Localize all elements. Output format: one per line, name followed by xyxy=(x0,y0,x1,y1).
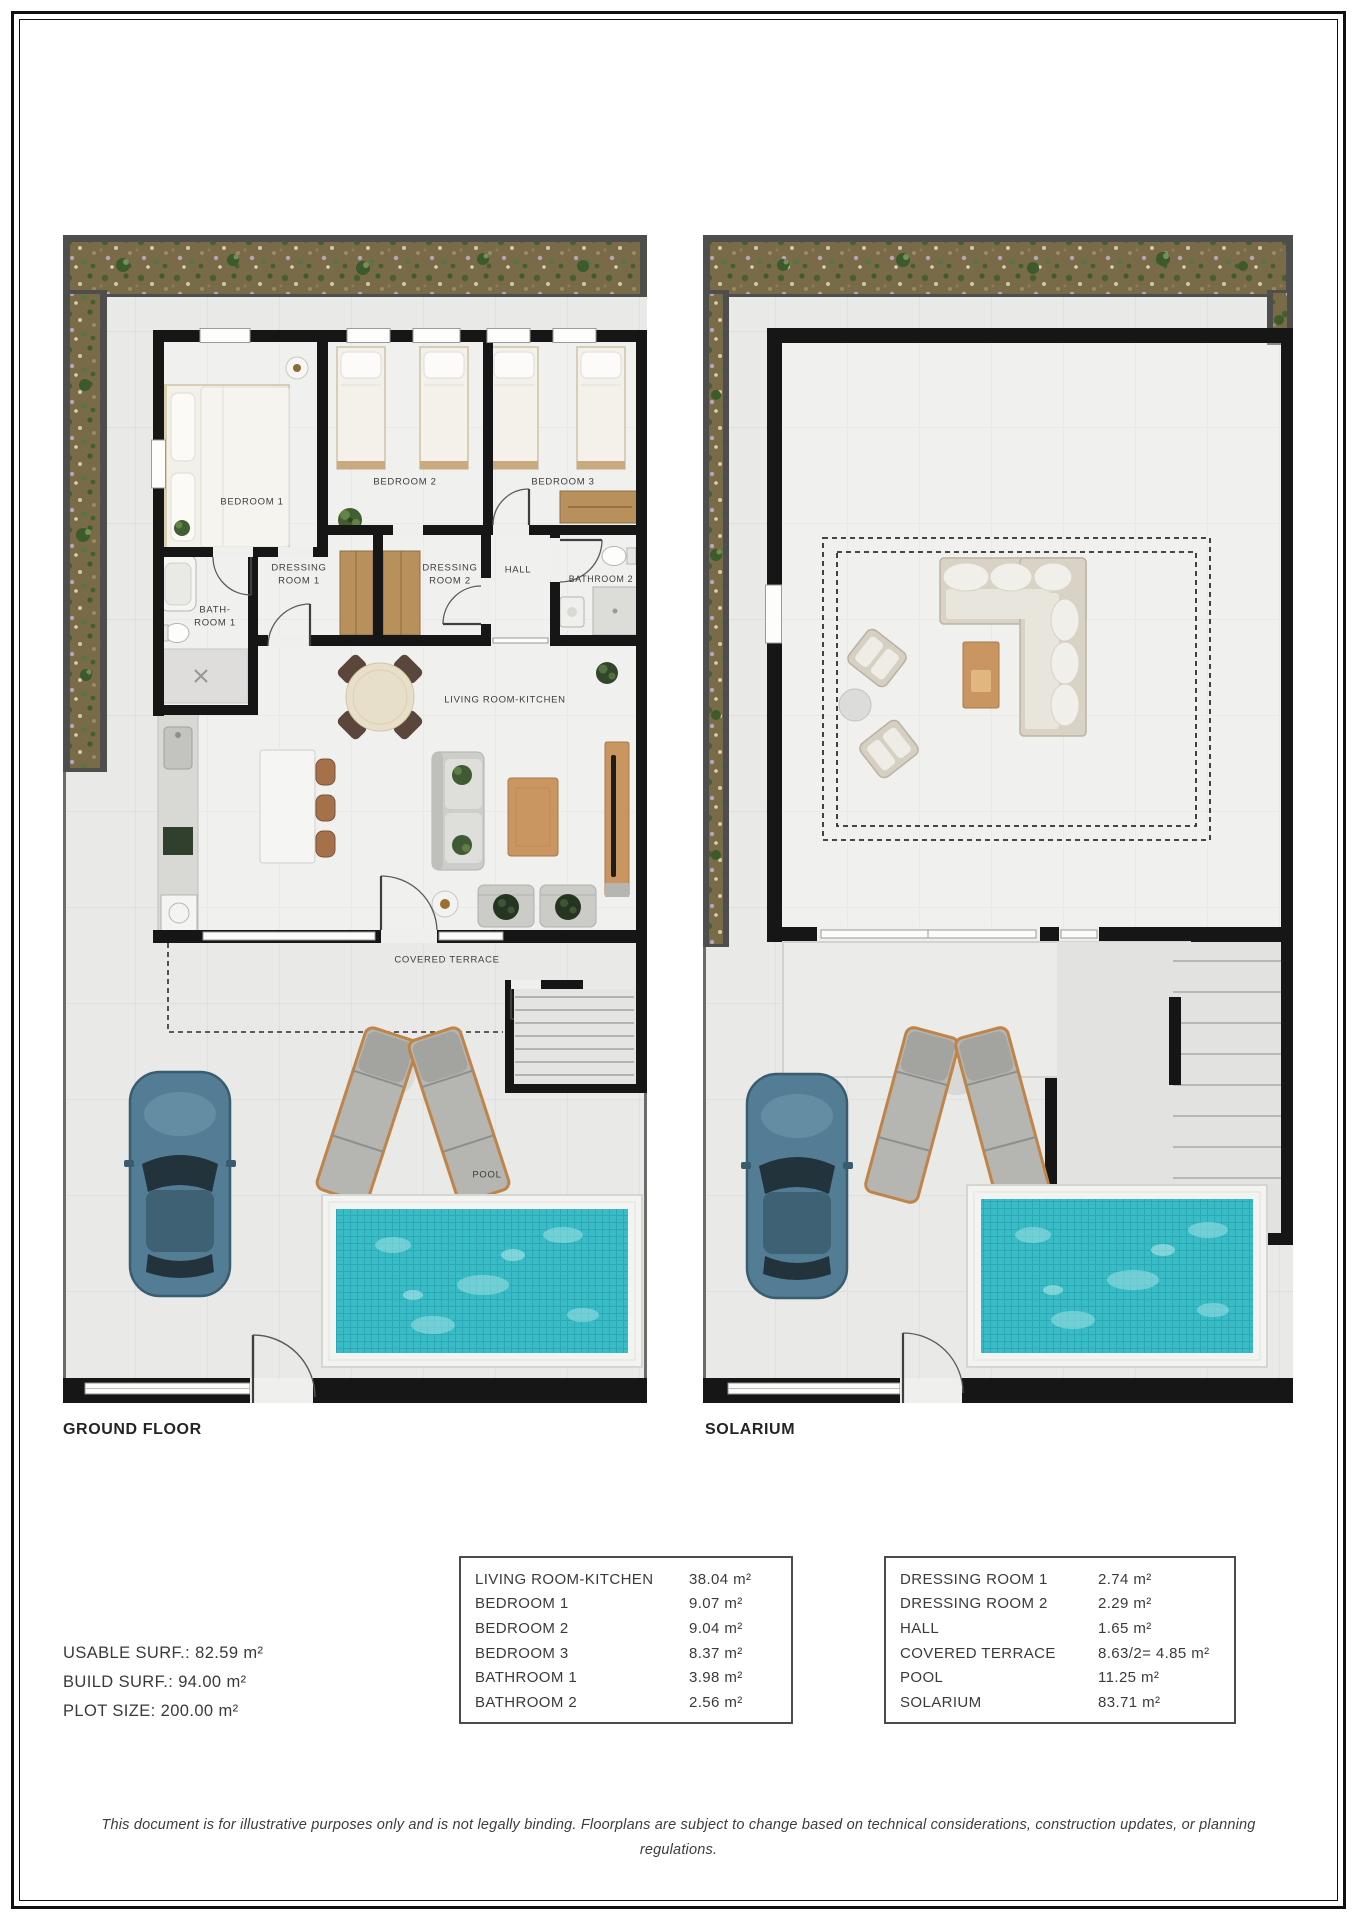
stat-usable-surface: USABLE SURF.: 82.59 m² xyxy=(63,1639,263,1668)
row-label: DRESSING ROOM 1 xyxy=(886,1571,1098,1588)
room-label-bedroom2: BEDROOM 2 xyxy=(373,477,436,490)
row-value: 83.71 m² xyxy=(1098,1694,1234,1711)
room-label-bedroom1: BEDROOM 1 xyxy=(220,497,283,510)
row-value: 2.74 m² xyxy=(1098,1571,1234,1588)
floorplan-page: BEDROOM 1 BEDROOM 2 BEDROOM 3 DRESSING R… xyxy=(0,0,1357,1920)
row-value: 2.56 m² xyxy=(689,1694,791,1711)
room-label-terrace: COVERED TERRACE xyxy=(394,955,499,968)
row-label: BATHROOM 2 xyxy=(461,1694,689,1711)
row-label: DRESSING ROOM 2 xyxy=(886,1595,1098,1612)
row-label: LIVING ROOM-KITCHEN xyxy=(461,1571,689,1588)
row-label: BEDROOM 2 xyxy=(461,1620,689,1637)
area-table-exterior: DRESSING ROOM 12.74 m² DRESSING ROOM 22.… xyxy=(884,1556,1236,1724)
plan-title-solarium: SOLARIUM xyxy=(705,1421,795,1439)
room-label-hall: HALL xyxy=(505,565,532,578)
table-row: BATHROOM 22.56 m² xyxy=(461,1690,791,1715)
row-label: HALL xyxy=(886,1620,1098,1637)
row-label: SOLARIUM xyxy=(886,1694,1098,1711)
room-label-pool: POOL xyxy=(472,1170,501,1183)
row-value: 8.37 m² xyxy=(689,1645,791,1662)
row-value: 3.98 m² xyxy=(689,1669,791,1686)
row-label: COVERED TERRACE xyxy=(886,1645,1098,1662)
room-label-dressing1: DRESSING ROOM 1 xyxy=(267,562,331,587)
surface-stats: USABLE SURF.: 82.59 m² BUILD SURF.: 94.0… xyxy=(63,1639,263,1726)
solarium-plan xyxy=(703,235,1293,1403)
table-row: LIVING ROOM-KITCHEN38.04 m² xyxy=(461,1567,791,1592)
table-row: BATHROOM 13.98 m² xyxy=(461,1665,791,1690)
room-label-bath1: BATH-ROOM 1 xyxy=(189,604,241,629)
row-label: BATHROOM 1 xyxy=(461,1669,689,1686)
table-row: POOL11.25 m² xyxy=(886,1665,1234,1690)
row-value: 8.63/2= 4.85 m² xyxy=(1098,1645,1234,1662)
stat-plot-size: PLOT SIZE: 200.00 m² xyxy=(63,1697,263,1726)
room-label-dressing2: DRESSING ROOM 2 xyxy=(418,562,482,587)
row-value: 2.29 m² xyxy=(1098,1595,1234,1612)
area-table-interior: LIVING ROOM-KITCHEN38.04 m² BEDROOM 19.0… xyxy=(459,1556,793,1724)
ground-floor-graphic xyxy=(63,235,647,1403)
row-value: 9.04 m² xyxy=(689,1620,791,1637)
solarium-graphic xyxy=(703,235,1293,1403)
row-value: 11.25 m² xyxy=(1098,1669,1234,1686)
table-row: BEDROOM 29.04 m² xyxy=(461,1616,791,1641)
ground-floor-plan: BEDROOM 1 BEDROOM 2 BEDROOM 3 DRESSING R… xyxy=(63,235,647,1403)
plan-title-ground-floor: GROUND FLOOR xyxy=(63,1421,202,1439)
room-label-living: LIVING ROOM-KITCHEN xyxy=(444,695,566,708)
table-row: HALL1.65 m² xyxy=(886,1616,1234,1641)
row-value: 38.04 m² xyxy=(689,1571,791,1588)
room-label-bedroom3: BEDROOM 3 xyxy=(531,477,594,490)
row-label: POOL xyxy=(886,1669,1098,1686)
table-row: BEDROOM 38.37 m² xyxy=(461,1641,791,1666)
room-label-bath2: BATHROOM 2 xyxy=(569,574,634,586)
table-row: DRESSING ROOM 12.74 m² xyxy=(886,1567,1234,1592)
table-row: COVERED TERRACE8.63/2= 4.85 m² xyxy=(886,1641,1234,1666)
stat-build-surface: BUILD SURF.: 94.00 m² xyxy=(63,1668,263,1697)
disclaimer-text: This document is for illustrative purpos… xyxy=(93,1813,1264,1864)
table-row: SOLARIUM83.71 m² xyxy=(886,1690,1234,1715)
row-label: BEDROOM 3 xyxy=(461,1645,689,1662)
row-label: BEDROOM 1 xyxy=(461,1595,689,1612)
table-row: DRESSING ROOM 22.29 m² xyxy=(886,1592,1234,1617)
table-row: BEDROOM 19.07 m² xyxy=(461,1592,791,1617)
row-value: 1.65 m² xyxy=(1098,1620,1234,1637)
row-value: 9.07 m² xyxy=(689,1595,791,1612)
